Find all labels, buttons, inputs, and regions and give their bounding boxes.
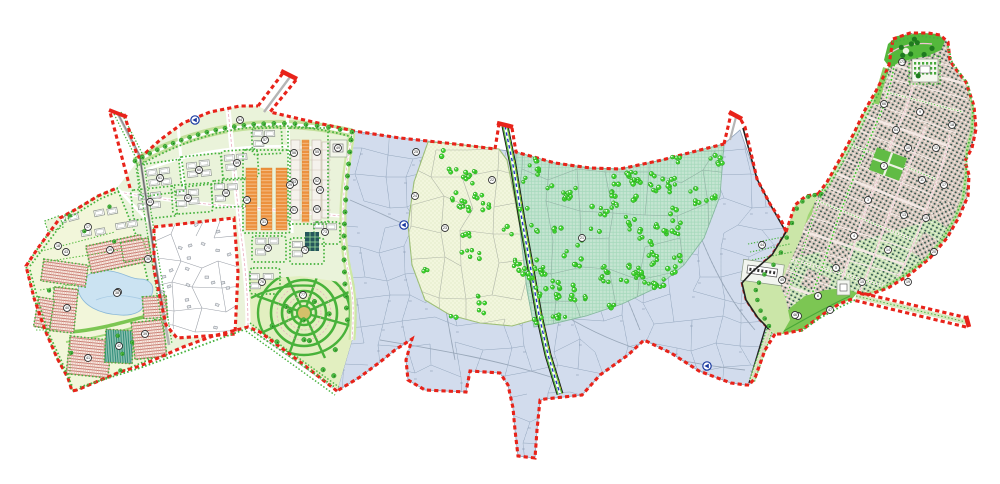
svg-text:2: 2: [883, 164, 885, 168]
svg-text:77: 77: [301, 293, 305, 297]
svg-text:58: 58: [224, 191, 228, 195]
svg-text:60: 60: [197, 168, 201, 172]
svg-text:64: 64: [894, 128, 898, 132]
svg-text:17: 17: [942, 183, 946, 187]
svg-text:22: 22: [490, 178, 494, 182]
svg-text:13: 13: [902, 213, 906, 217]
svg-text:63: 63: [148, 200, 152, 204]
svg-text:14: 14: [886, 248, 890, 252]
svg-text:18: 18: [56, 244, 60, 248]
svg-text:21: 21: [580, 236, 584, 240]
svg-text:23: 23: [443, 226, 447, 230]
svg-text:51: 51: [292, 208, 296, 212]
svg-text:46: 46: [793, 313, 797, 317]
svg-text:17: 17: [86, 225, 90, 229]
svg-text:38: 38: [115, 291, 119, 295]
svg-text:12: 12: [934, 146, 938, 150]
svg-text:62: 62: [186, 196, 190, 200]
svg-text:5: 5: [835, 266, 837, 270]
svg-text:43: 43: [64, 250, 68, 254]
svg-text:36: 36: [146, 257, 150, 261]
svg-text:50: 50: [315, 207, 319, 211]
svg-text:29: 29: [288, 183, 292, 187]
svg-text:59: 59: [235, 161, 239, 165]
svg-text:56: 56: [292, 151, 296, 155]
svg-text:42: 42: [117, 344, 121, 348]
svg-text:25: 25: [414, 150, 418, 154]
svg-text:57: 57: [263, 138, 267, 142]
svg-text:45: 45: [780, 278, 784, 282]
svg-text:10: 10: [906, 146, 910, 150]
svg-text:11: 11: [920, 178, 924, 182]
svg-text:44: 44: [760, 243, 764, 247]
svg-text:75: 75: [266, 246, 270, 250]
svg-text:76: 76: [260, 280, 264, 284]
svg-text:4: 4: [853, 234, 855, 238]
svg-text:47: 47: [828, 308, 832, 312]
svg-text:74: 74: [303, 248, 307, 252]
svg-text:19: 19: [108, 248, 112, 252]
svg-text:9: 9: [919, 110, 921, 114]
svg-text:173: 173: [899, 60, 905, 64]
svg-text:49: 49: [336, 146, 340, 150]
svg-text:15: 15: [860, 280, 864, 284]
svg-text:66: 66: [882, 102, 886, 106]
svg-text:16: 16: [924, 216, 928, 220]
svg-text:73: 73: [323, 230, 327, 234]
svg-text:19: 19: [906, 280, 910, 284]
svg-text:40: 40: [65, 306, 69, 310]
svg-text:52: 52: [315, 179, 319, 183]
svg-text:20: 20: [932, 250, 936, 254]
svg-text:31: 31: [262, 220, 266, 224]
svg-text:28: 28: [318, 188, 322, 192]
svg-text:39: 39: [143, 332, 147, 336]
svg-text:3: 3: [867, 198, 869, 202]
svg-text:41: 41: [86, 356, 90, 360]
svg-text:6: 6: [817, 294, 819, 298]
svg-text:54: 54: [238, 118, 242, 122]
svg-text:61: 61: [158, 176, 162, 180]
svg-text:30: 30: [245, 198, 249, 202]
svg-text:18: 18: [950, 123, 954, 127]
svg-text:55: 55: [315, 150, 319, 154]
svg-text:24: 24: [413, 194, 417, 198]
